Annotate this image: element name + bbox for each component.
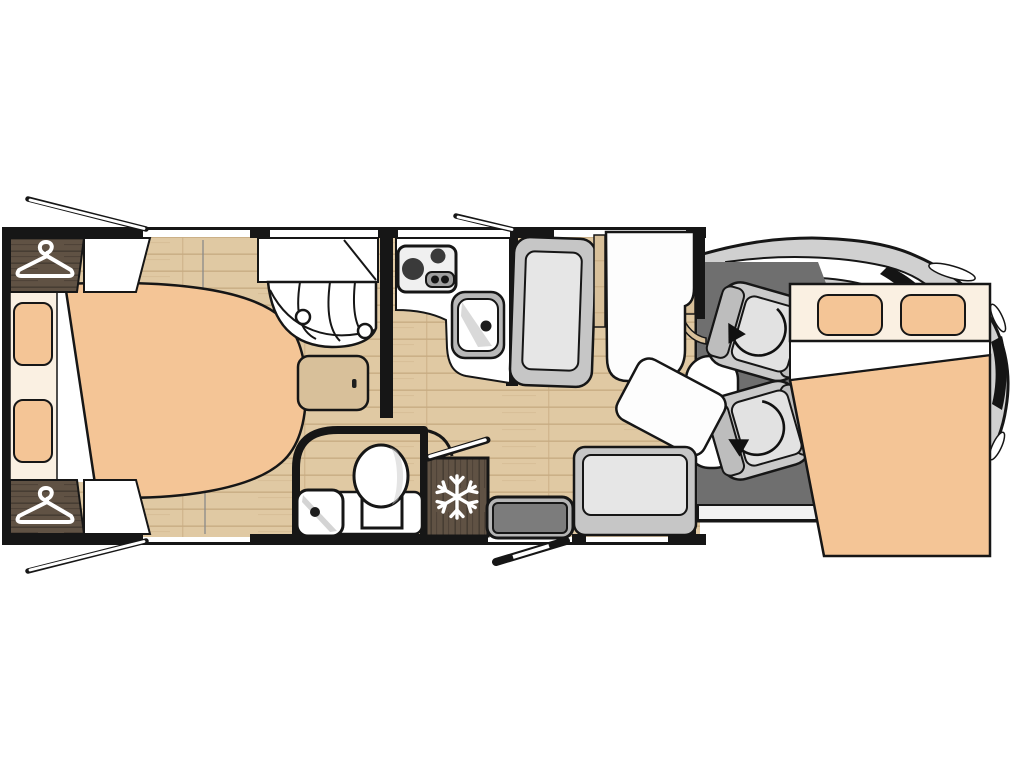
window-flap xyxy=(28,199,146,229)
hob-knob xyxy=(441,276,449,284)
hob-burner-small xyxy=(431,249,446,264)
top-wall xyxy=(378,227,398,238)
cabinet-handle xyxy=(352,379,357,388)
hob xyxy=(398,246,456,292)
drop-down-bed xyxy=(790,284,990,556)
window-flap xyxy=(28,541,146,571)
wardrobe-rear-top xyxy=(10,238,84,292)
top-wall xyxy=(2,227,143,238)
sink-faucet xyxy=(481,321,492,332)
sink xyxy=(452,292,504,358)
hob-knob xyxy=(431,276,439,284)
motorhome-floorplan xyxy=(0,0,1024,768)
bedside-cabinet xyxy=(298,356,368,410)
bed-pillow xyxy=(14,303,52,365)
basin-faucet xyxy=(310,507,320,517)
curtain-hinge xyxy=(296,310,310,324)
bottom-wall xyxy=(2,534,143,545)
hob-burner-large xyxy=(402,258,424,280)
bench-rear xyxy=(509,237,596,388)
floorplan-canvas xyxy=(0,0,1024,768)
curtain-hinge xyxy=(358,324,372,338)
washroom-kitchen-wall xyxy=(380,238,393,418)
hob-controls xyxy=(426,272,454,287)
top-wall xyxy=(250,227,270,238)
washbasin xyxy=(297,490,343,536)
entry-step-tread xyxy=(493,503,567,533)
entrance xyxy=(487,497,573,562)
sideboard xyxy=(594,235,605,327)
drop-down-bed-pillow xyxy=(901,295,965,335)
drop-down-bed-pillow xyxy=(818,295,882,335)
cab-bulkhead xyxy=(695,227,705,319)
drop-down-bed-mattress xyxy=(790,355,990,556)
island-bed xyxy=(65,283,306,498)
bench-front xyxy=(574,447,696,535)
bed-pillow xyxy=(14,400,52,462)
